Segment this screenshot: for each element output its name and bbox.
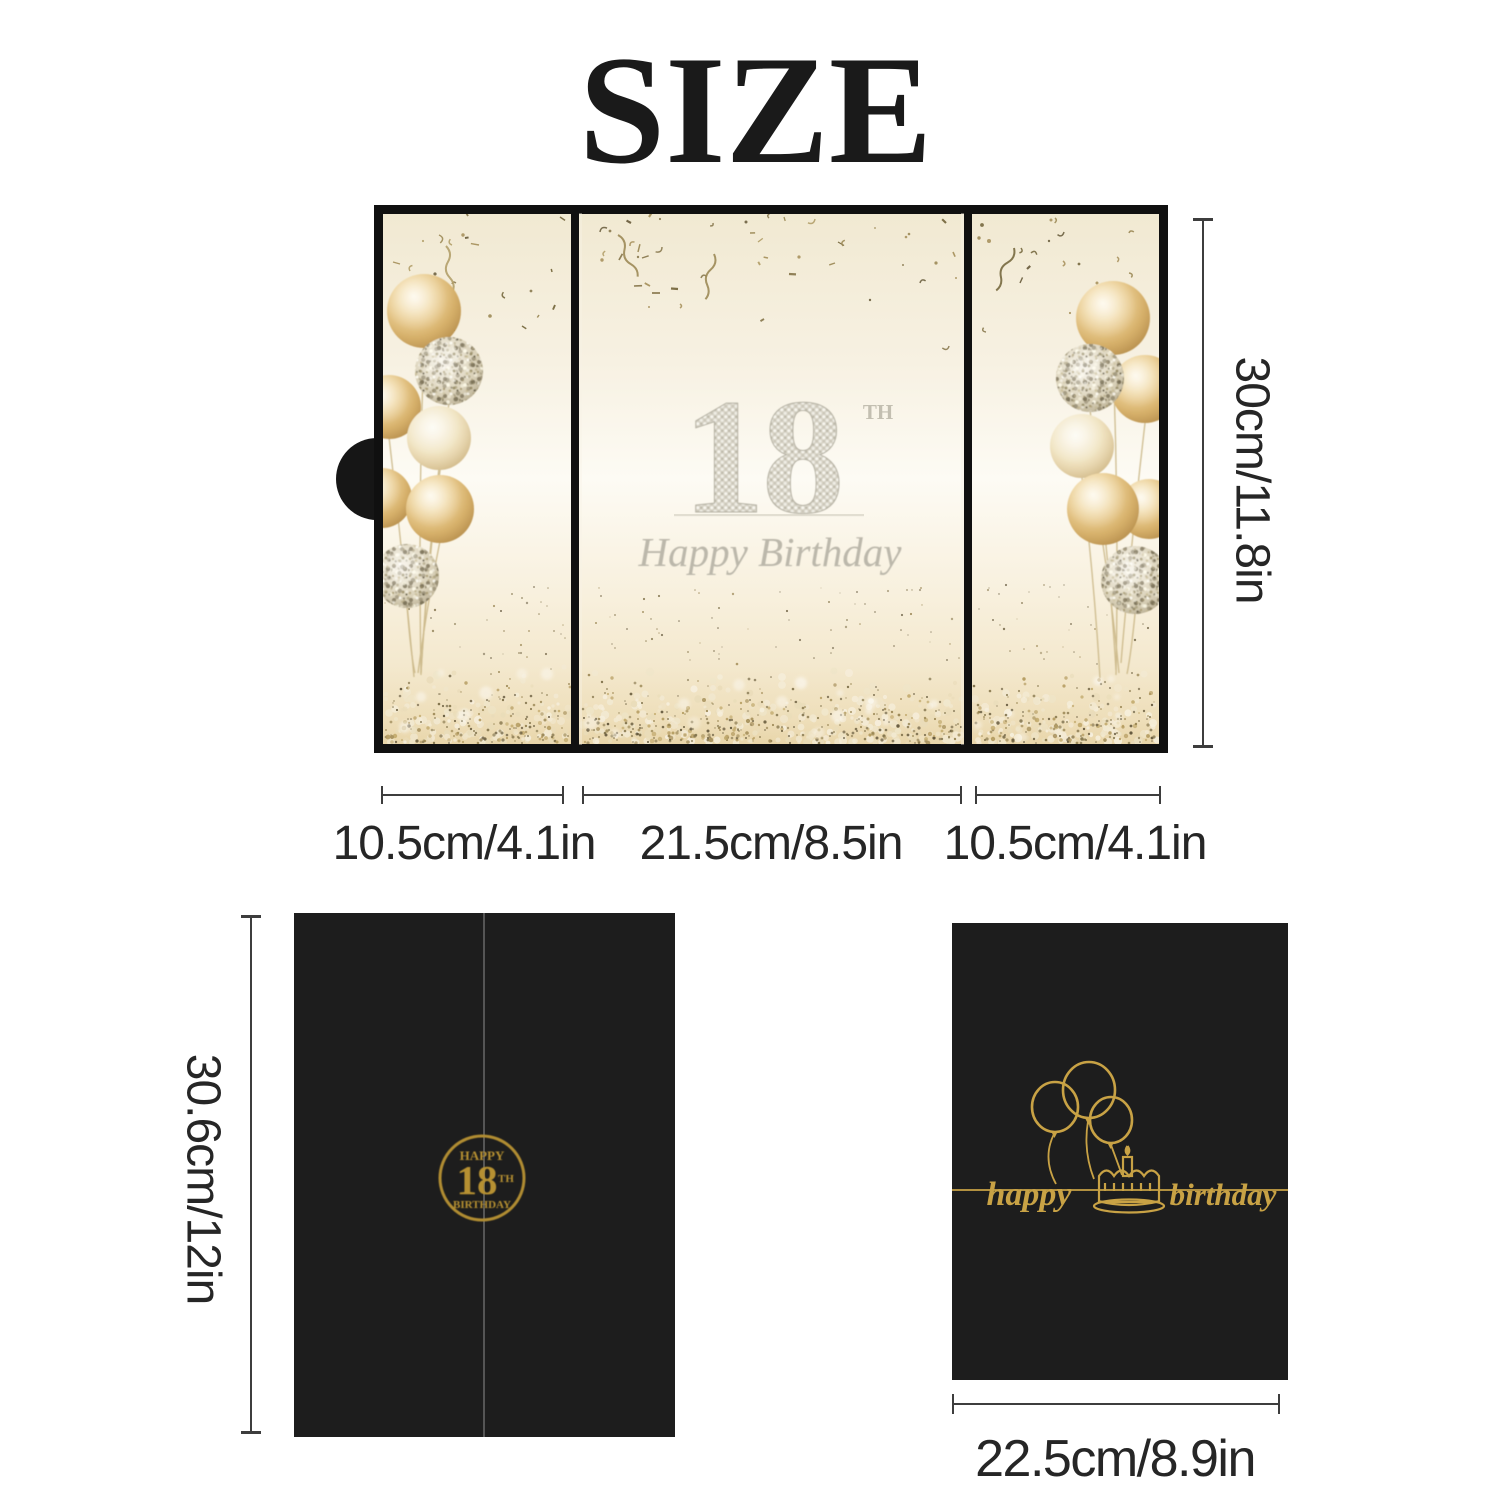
svg-text:Happy Birthday: Happy Birthday: [637, 529, 902, 575]
svg-text:birthday: birthday: [1170, 1177, 1277, 1212]
svg-text:happy: happy: [987, 1176, 1073, 1213]
svg-text:18: 18: [457, 1157, 498, 1203]
svg-text:TH: TH: [863, 400, 893, 424]
svg-text:TH: TH: [498, 1173, 514, 1185]
svg-text:18: 18: [683, 365, 842, 548]
svg-text:BIRTHDAY: BIRTHDAY: [453, 1199, 511, 1211]
